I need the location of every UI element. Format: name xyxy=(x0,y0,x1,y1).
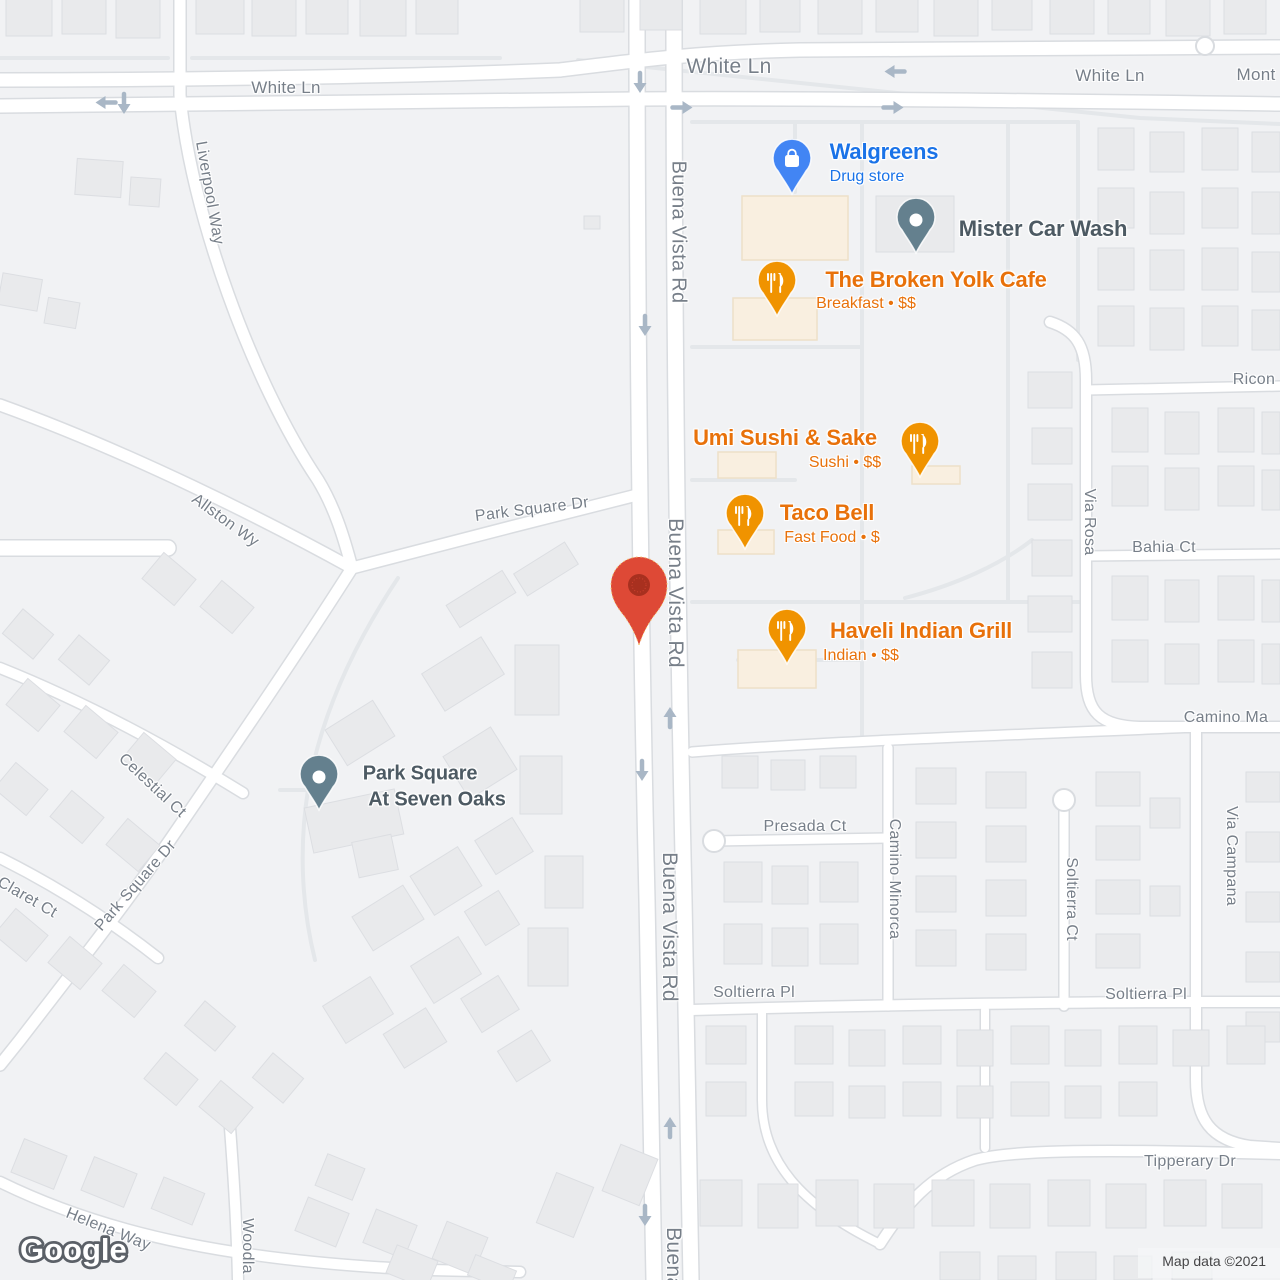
street-label-white-ln-left: White Ln xyxy=(251,78,321,98)
poi-title-umi-sushi-sake[interactable]: Umi Sushi & Sake xyxy=(693,425,877,451)
oneway-arrow-right xyxy=(881,97,910,119)
street-label-white-ln-right: White Ln xyxy=(1075,66,1145,86)
poi-subtitle-haveli-indian-grill[interactable]: Indian • $$ xyxy=(823,647,899,665)
poi-pin-the-broken-yolk-cafe[interactable] xyxy=(756,261,798,324)
poi-title-mister-car-wash[interactable]: Mister Car Wash xyxy=(959,216,1128,242)
poi-title-walgreens[interactable]: Walgreens xyxy=(830,139,939,165)
oneway-arrow-up xyxy=(659,1111,681,1140)
oneway-arrow-down xyxy=(113,91,135,120)
street-label-presada-ct: Presada Ct xyxy=(763,818,846,836)
street-label-white-ln-center: White Ln xyxy=(686,55,771,79)
street-label-tipperary-dr: Tipperary Dr xyxy=(1144,1153,1236,1171)
oneway-arrow-down xyxy=(629,70,651,99)
poi-subtitle-umi-sushi-sake[interactable]: Sushi • $$ xyxy=(809,454,881,472)
street-label-soltierra-pl-left: Soltierra Pl xyxy=(713,984,795,1002)
poi-title2-park-square-at-seven-oaks[interactable]: At Seven Oaks xyxy=(368,789,505,812)
street-label-camino-minorca: Camino Minorca xyxy=(885,819,903,940)
dot-icon xyxy=(313,771,326,784)
poi-title-taco-bell[interactable]: Taco Bell xyxy=(780,500,874,526)
street-label-buena-vista-rd-bottom: Buena Vista Rd xyxy=(661,1227,685,1280)
poi-pin-taco-bell[interactable] xyxy=(724,494,766,557)
poi-subtitle-walgreens[interactable]: Drug store xyxy=(830,168,905,186)
street-label-ricon: Ricon xyxy=(1233,371,1275,389)
destination-marker[interactable] xyxy=(608,553,670,650)
street-label-mont: Mont xyxy=(1237,65,1276,85)
street-label-soltierra-ct: Soltierra Ct xyxy=(1062,857,1080,941)
street-label-woodland: Woodla xyxy=(238,1218,256,1274)
street-label-liverpool-way: Liverpool Way xyxy=(191,140,227,246)
dot-icon xyxy=(910,214,923,227)
street-label-park-square-dr-left: Park Square Dr xyxy=(92,837,181,935)
street-label-buena-vista-rd-low: Buena Vista Rd xyxy=(657,852,681,1002)
poi-pin-mister-car-wash[interactable] xyxy=(895,198,937,261)
oneway-arrow-up xyxy=(659,701,681,730)
street-label-buena-vista-rd-top: Buena Vista Rd xyxy=(667,161,690,304)
poi-pin-park-square-at-seven-oaks[interactable] xyxy=(298,755,340,818)
poi-subtitle-the-broken-yolk-cafe[interactable]: Breakfast • $$ xyxy=(816,295,916,313)
street-label-claret-ct: Claret Ct xyxy=(0,874,60,923)
google-logo-text: Google xyxy=(20,1232,127,1267)
oneway-arrow-down xyxy=(634,1203,656,1232)
oneway-arrow-down xyxy=(634,313,656,342)
poi-pin-umi-sushi-sake[interactable] xyxy=(899,422,941,485)
street-label-park-square-dr: Park Square Dr xyxy=(474,494,590,526)
oneway-arrow-right xyxy=(670,97,699,119)
map-canvas[interactable]: White LnWhite LnWhite LnMontBuena Vista … xyxy=(0,0,1280,1280)
google-logo[interactable]: Google xyxy=(16,1228,148,1272)
poi-title-the-broken-yolk-cafe[interactable]: The Broken Yolk Cafe xyxy=(825,267,1046,293)
poi-pin-haveli-indian-grill[interactable] xyxy=(766,609,808,672)
street-label-bahia-ct: Bahia Ct xyxy=(1132,539,1196,557)
street-label-allston-wy: Allston Wy xyxy=(188,491,262,552)
poi-title-park-square-at-seven-oaks[interactable]: Park Square xyxy=(363,763,478,786)
street-label-celestial-ct: Celestial Ct xyxy=(115,750,190,821)
oneway-arrow-down xyxy=(631,758,653,787)
label-layer: White LnWhite LnWhite LnMontBuena Vista … xyxy=(0,0,1280,1280)
street-label-soltierra-pl-right: Soltierra Pl xyxy=(1105,986,1187,1004)
map-attribution: Map data ©2021 xyxy=(1138,1248,1280,1278)
poi-pin-walgreens[interactable] xyxy=(771,139,813,202)
poi-subtitle-taco-bell[interactable]: Fast Food • $ xyxy=(784,529,879,547)
street-label-camino-ma: Camino Ma xyxy=(1184,709,1269,727)
oneway-arrow-left xyxy=(879,61,908,83)
street-label-via-campana: Via Campana xyxy=(1222,806,1240,906)
poi-title-haveli-indian-grill[interactable]: Haveli Indian Grill xyxy=(830,618,1012,644)
street-label-via-rosa: Via Rosa xyxy=(1080,488,1098,555)
